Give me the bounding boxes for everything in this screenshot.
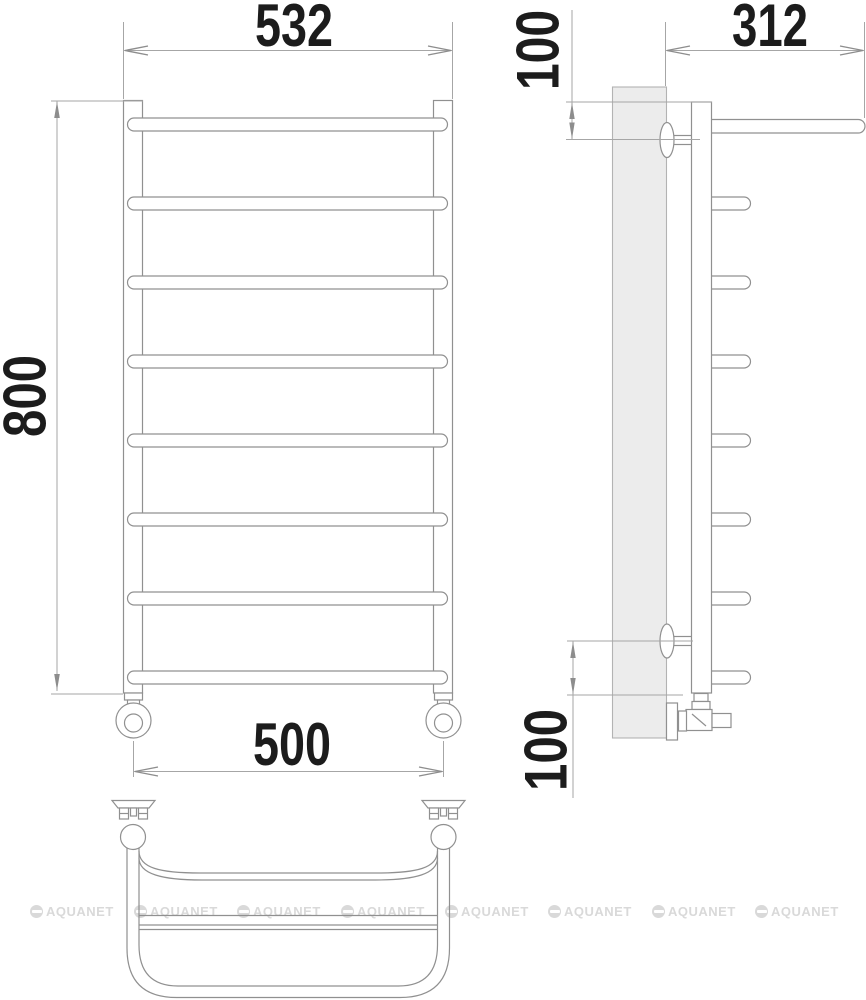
dimension-100-top: 100 (505, 10, 713, 140)
side-valve (667, 694, 732, 741)
front-left-valve (116, 693, 151, 738)
side-rail-tube (692, 102, 712, 693)
dim-label-bottom-width: 500 (253, 711, 331, 778)
front-rungs (128, 118, 448, 684)
bottom-right-ball-joint (431, 825, 456, 850)
front-right-valve (426, 693, 461, 738)
arrow-down (54, 674, 60, 691)
arrow-up (570, 642, 575, 659)
dimension-500: 500 (134, 711, 444, 778)
dimension-532: 532 (124, 0, 453, 99)
drawing-svg: 532 312 800 500 (0, 0, 866, 1000)
shelf-curve-bottom (139, 858, 438, 880)
bottom-view (112, 801, 465, 998)
arrow-up (569, 103, 574, 120)
bottom-left-ball-joint (121, 825, 146, 850)
technical-drawing-canvas: AQUANET AQUANET AQUANET AQUANET AQUANET … (0, 0, 866, 1000)
dim-label-side-bottom-offset: 100 (513, 709, 580, 791)
dim-label-front-width: 532 (255, 0, 333, 59)
dim-label-front-height: 800 (0, 355, 59, 437)
frame-outer-edge (127, 846, 450, 998)
dimension-312: 312 (666, 0, 865, 118)
bottom-right-bracket (422, 801, 465, 820)
arrow-down (569, 123, 574, 140)
side-shelf-bar (705, 120, 865, 134)
dimension-800: 800 (0, 101, 143, 694)
front-view (116, 101, 461, 739)
wall-strip (613, 87, 667, 738)
dim-label-side-depth: 312 (732, 0, 808, 59)
side-view (613, 87, 866, 740)
dim-label-side-top-offset: 100 (505, 10, 572, 90)
arrow-down (570, 678, 575, 695)
shelf-curve-top (139, 851, 438, 873)
arrow-up (54, 102, 60, 119)
bottom-left-bracket (112, 801, 155, 820)
